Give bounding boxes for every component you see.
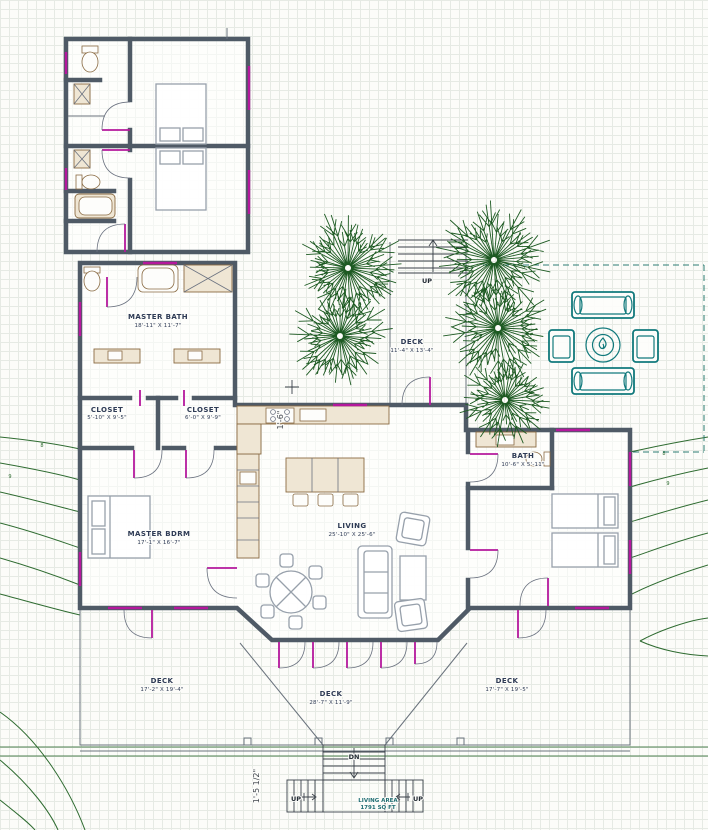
up-arrow-icon [302,793,316,801]
bathtub-icon [138,265,178,292]
bed-icon [156,148,206,210]
stair-up-left-label: UP [291,795,301,803]
stool-icon [293,494,308,506]
tree-icon [302,214,401,327]
stair-offset-dimension: 1'-5 1/2" [252,769,261,803]
stool-icon [318,494,333,506]
tree-icon [289,289,392,385]
bed-icon [156,84,206,144]
kitchen-island-icon [286,458,364,506]
entry-stairs: DN UP UP LIVING AREA 1791 SQ FT 1'-5 1/2… [252,745,423,812]
french-door-icons [279,642,437,668]
sofa-icon [358,546,392,618]
contour-elevation-label: 9 [666,481,669,487]
kitchen-offset-dimension: 1'-6" [276,411,285,430]
closet-right-label: CLOSET [187,406,219,414]
contour-elevation-label: 9 [8,474,11,480]
fire-pit-icon [586,328,620,362]
master-bdrm-label: MASTER BDRM [128,530,191,538]
master-bdrm-dims: 17'-1" X 16'-7" [137,540,180,546]
shower-icon [74,150,90,168]
tree-icon [436,201,550,311]
sink-icon [300,409,326,421]
vanity-icon [476,432,536,447]
bathtub-icon [75,194,115,218]
bed-icon [552,533,618,567]
refrigerator-icon [237,424,261,454]
armchair-icon [396,512,431,547]
deck-center-label: DECK [320,690,343,698]
outdoor-sofa-icon [572,368,634,394]
toilet-icon [76,175,100,189]
bed-icon [552,494,618,528]
armchair-icon [394,598,428,632]
door-icon [402,377,430,405]
bath-label: BATH [512,452,534,460]
vanity-icon [174,349,220,363]
closet-right-dims: 6'-0" X 9'-9" [185,415,221,421]
master-bath-label: MASTER BATH [128,313,188,321]
outdoor-chair-icon [633,330,658,362]
flame-icon [599,338,606,349]
stair-up-top-label: UP [422,277,432,285]
toilet-icon [84,267,100,291]
up-arrow-icon [429,240,437,272]
survey-cross-icon [285,380,299,394]
toilet-icon [82,46,98,72]
deck-right-dims: 17'-7" X 19'-5" [485,687,528,693]
master-bath-dims: 18'-11" X 11'-7" [134,323,181,329]
coffee-table-icon [400,556,426,600]
bath-dims: 10'-6" X 5'-11" [501,462,544,468]
deck-right-label: DECK [496,677,519,685]
vanity-icon [94,349,140,363]
floor-plan-canvas: 8 9 8 9 DECK 17'-2" X 19'-4" DECK 28'-7"… [0,0,708,830]
guest-house [66,28,249,252]
stair-dn-label: DN [349,753,360,761]
door-icon [124,610,152,638]
stair-up-right-label: UP [413,795,423,803]
deck-left-label: DECK [151,677,174,685]
deck-left-dims: 17'-2" X 19'-4" [140,687,183,693]
kitchen-sink-icon [240,472,256,484]
shower-icon [184,265,232,292]
site-plan-drawing: 8 9 8 9 DECK 17'-2" X 19'-4" DECK 28'-7"… [0,0,708,830]
deck-post [244,738,251,745]
door-icon [518,610,546,638]
outdoor-chair-icon [549,330,574,362]
outdoor-sofa-icon [572,292,634,318]
living-dims: 25'-10" X 25'-6" [328,532,375,538]
bed-icon [88,496,150,558]
outdoor-furniture [549,292,658,394]
up-arrow-icon [396,793,410,801]
deck-post [457,738,464,745]
living-area-note-line2: 1791 SQ FT [360,805,396,811]
closet-left-label: CLOSET [91,406,123,414]
deck-courtyard-dims: 11'-4" X 13'-4" [390,348,433,354]
living-area-note-line1: LIVING AREA [358,798,398,804]
stool-icon [343,494,358,506]
closet-left-dims: 5'-10" X 9'-5" [87,415,127,421]
shower-icon [74,84,90,104]
deck-courtyard-label: DECK [401,338,424,346]
deck-center-dims: 28'-7" X 11'-9" [309,700,352,706]
contour-elevation-label: 8 [40,443,43,449]
living-label: LIVING [337,522,366,530]
